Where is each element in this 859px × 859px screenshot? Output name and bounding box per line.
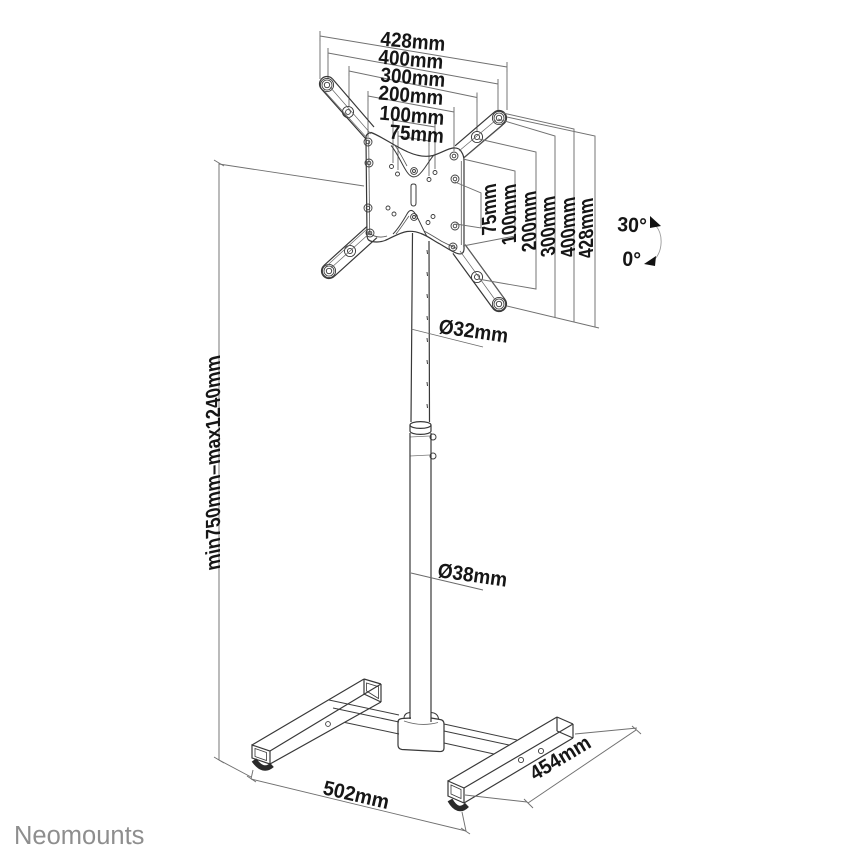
svg-text:75mm: 75mm	[389, 121, 445, 148]
svg-text:min750mm–max1240mm: min750mm–max1240mm	[202, 353, 225, 573]
svg-text:428mm: 428mm	[576, 196, 598, 261]
svg-text:0°: 0°	[622, 248, 642, 272]
svg-text:30°: 30°	[617, 214, 648, 238]
svg-text:300mm: 300mm	[538, 194, 560, 259]
svg-text:Neomounts: Neomounts	[14, 822, 144, 850]
svg-text:75mm: 75mm	[479, 182, 501, 237]
svg-text:100mm: 100mm	[499, 182, 521, 247]
